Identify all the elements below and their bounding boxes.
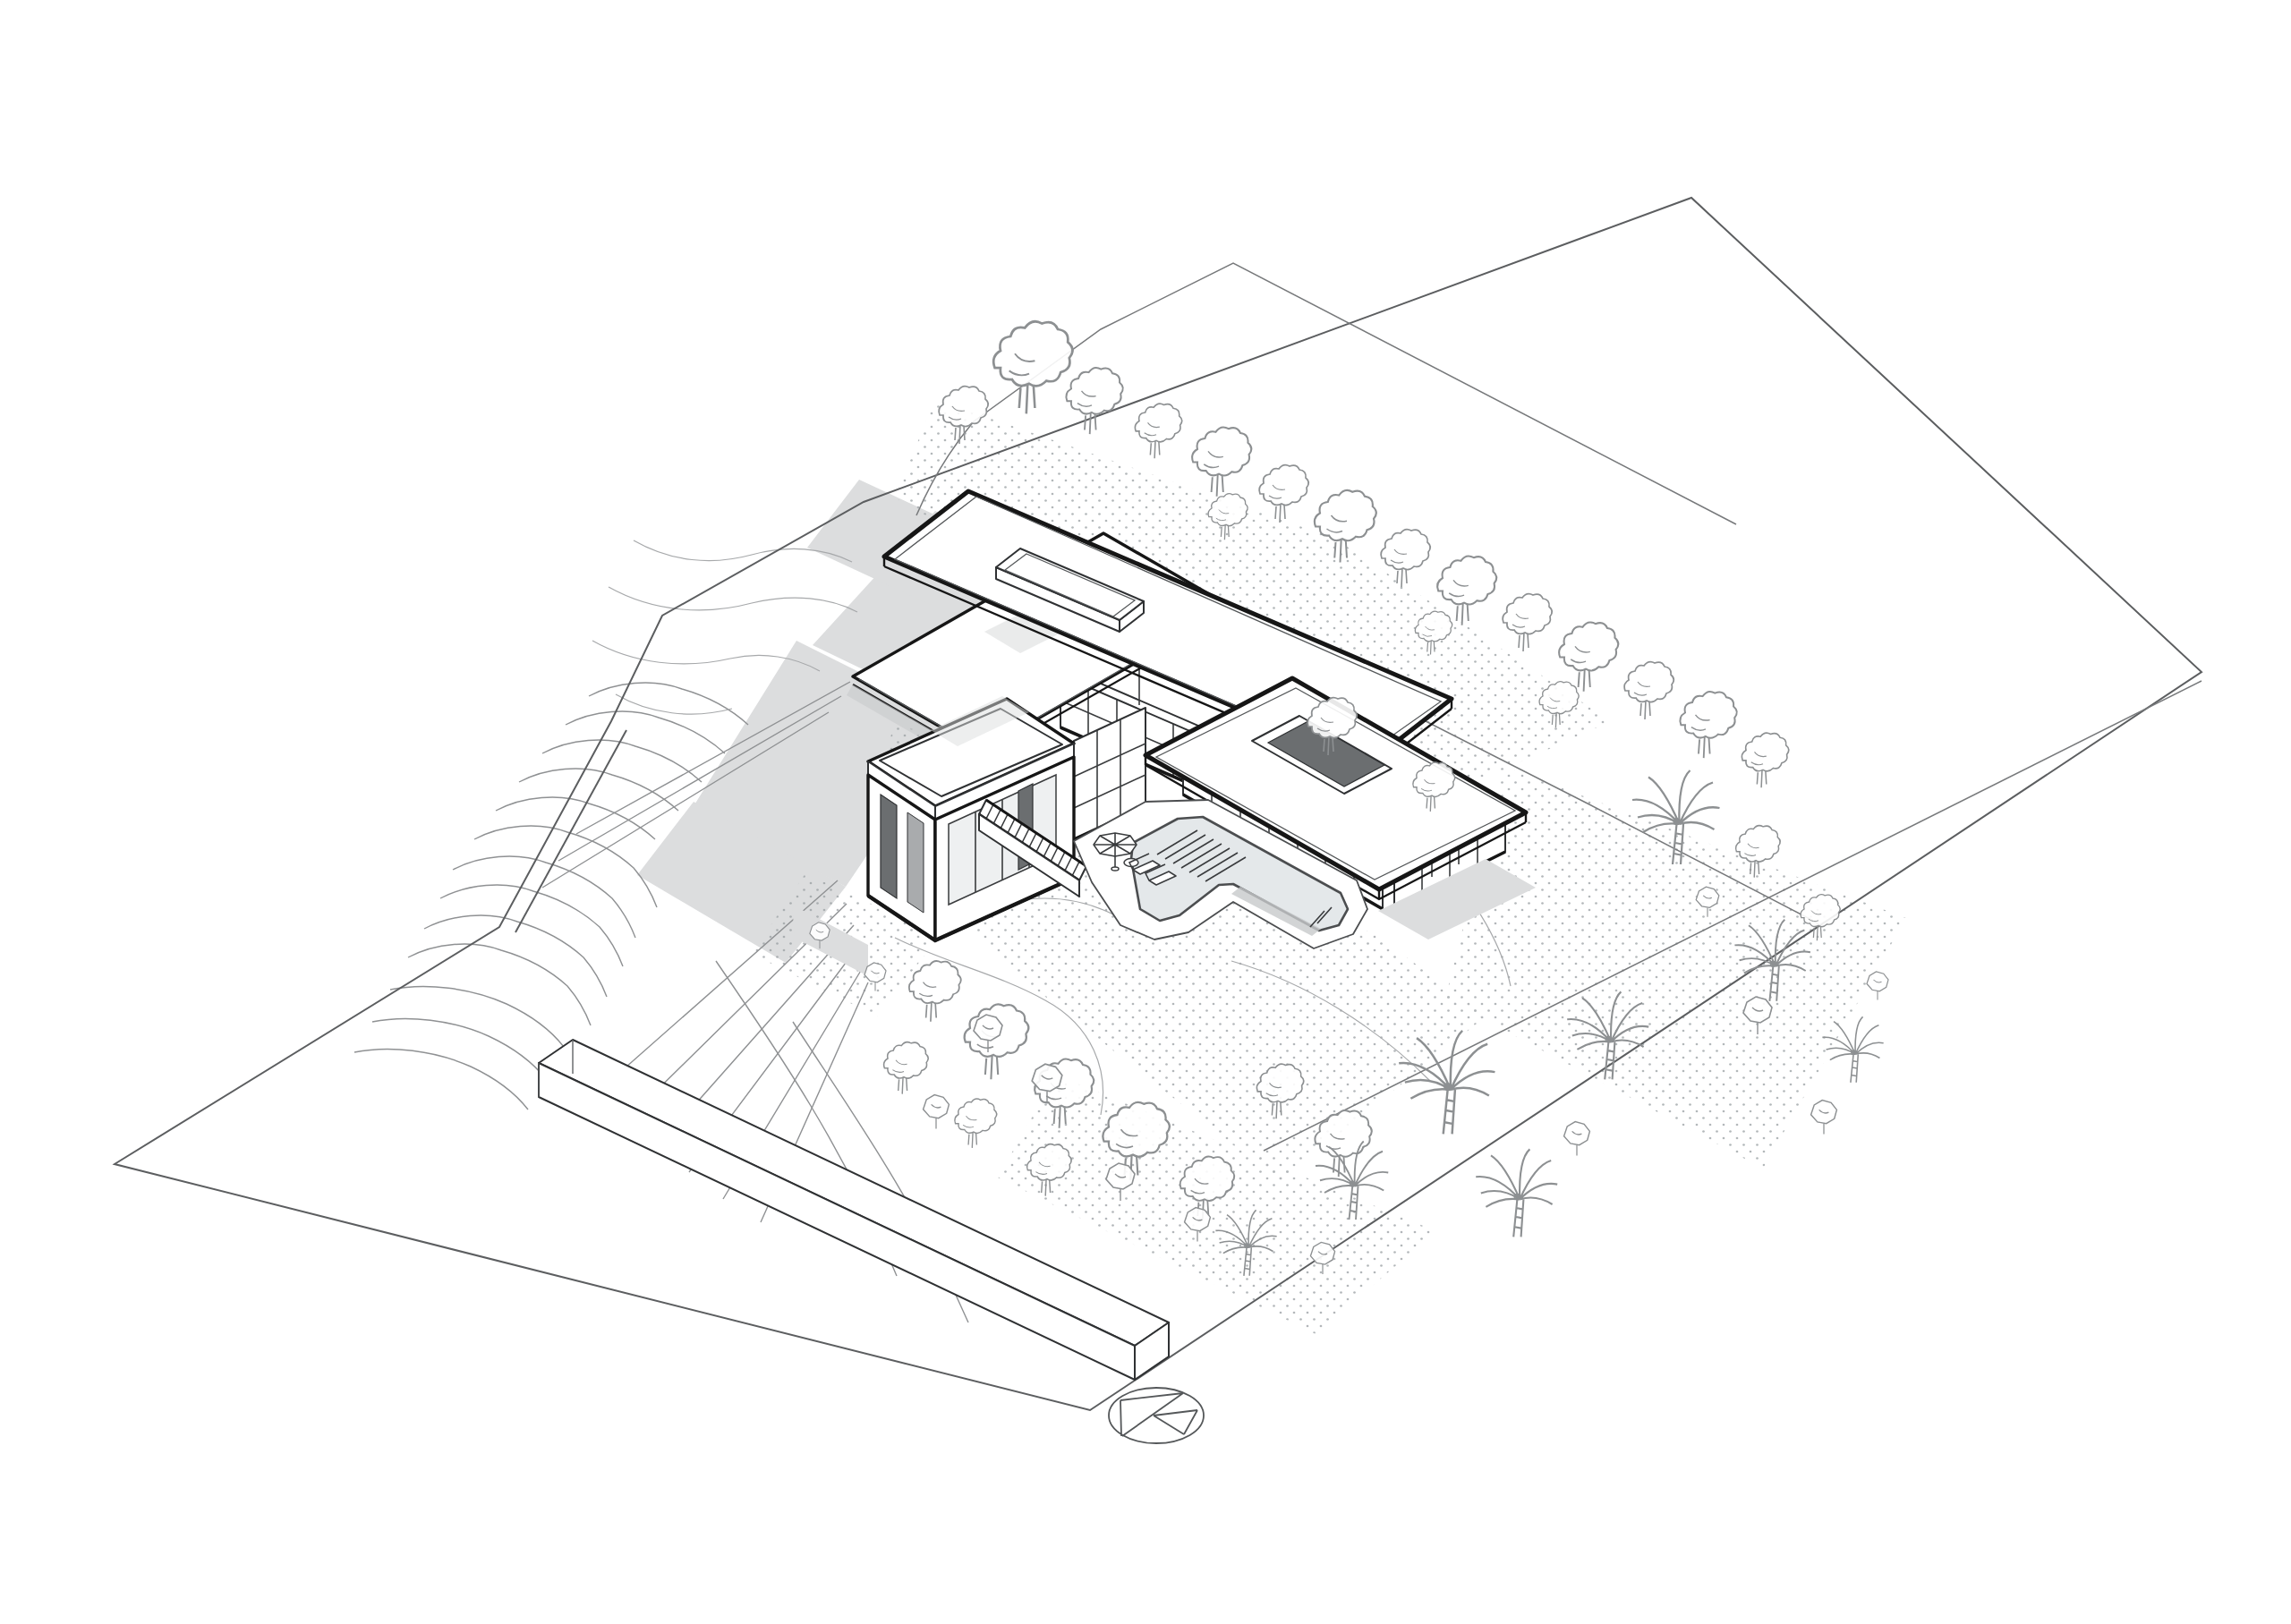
site-plan-sheet: Hillside residence — axonometric site pl…: [36, 14, 2291, 1624]
north-arrow-icon: North arrow: [1109, 1388, 1204, 1443]
site-plan-drawing: Hillside residence — axonometric site pl…: [36, 14, 2291, 1624]
